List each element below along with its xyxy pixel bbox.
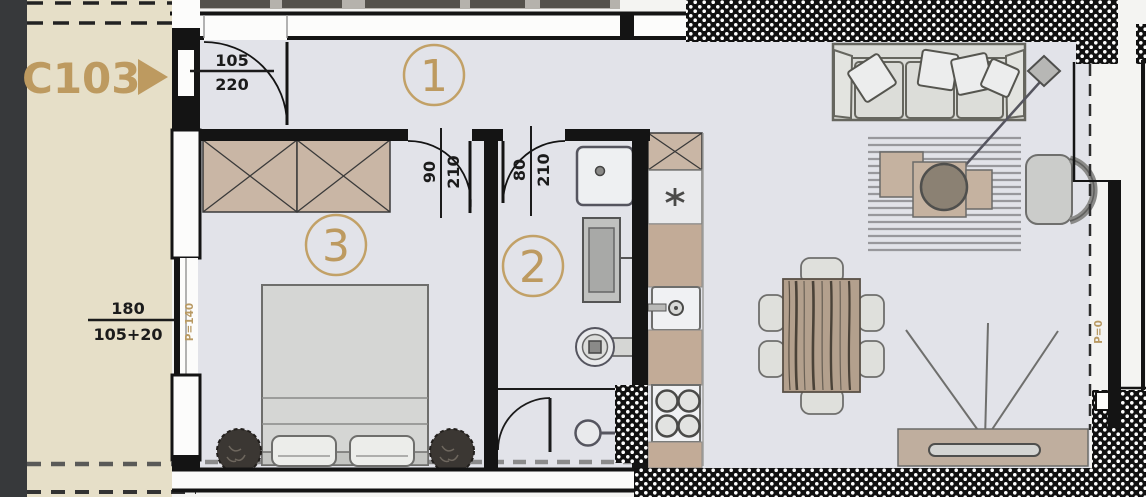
dimension-width-text: 180 — [111, 299, 144, 318]
stove-burner — [679, 416, 700, 437]
sink-drain-dot — [674, 306, 678, 310]
wall-left-cut — [172, 130, 200, 258]
wall-bathroom-west — [484, 129, 498, 468]
wall-hatched-bottom — [634, 468, 1146, 497]
wall-bedroom-north — [196, 129, 408, 141]
installation-shaft — [615, 385, 648, 463]
dining-chair — [858, 295, 884, 331]
pillow — [272, 436, 336, 466]
neighbour-furniture — [365, 0, 460, 8]
neighbour-unit-sliver — [196, 0, 620, 9]
wall-bottom — [172, 468, 634, 492]
neighbour-furniture — [282, 0, 342, 8]
armchair-seat — [1026, 155, 1072, 224]
stove-burner — [657, 416, 678, 437]
dimension-height-text: 105+20 — [93, 325, 162, 344]
window-frame — [174, 258, 180, 375]
round-side-table — [921, 164, 967, 210]
dimension-width-text: 90 — [420, 161, 439, 183]
shower-drain-icon — [596, 167, 605, 176]
kitchen-counter — [648, 224, 702, 287]
shower-tray — [577, 147, 633, 205]
table-wood-grain — [849, 281, 850, 390]
wall-hatched-top — [686, 0, 1118, 42]
dimension-height-text: 220 — [215, 75, 248, 94]
pillow — [350, 436, 414, 466]
stove-burner — [657, 391, 678, 412]
wall-left-cut — [172, 375, 200, 460]
dimension-width-text: 105 — [215, 51, 248, 70]
stove-burner — [679, 391, 700, 412]
tv-screen — [929, 444, 1040, 456]
room-number-text: 2 — [519, 242, 547, 293]
corridor-window: P=140 — [174, 258, 198, 375]
dimension-width-text: 80 — [510, 159, 529, 181]
toilet-tank — [612, 338, 634, 356]
dimension-height-text: 210 — [534, 153, 553, 186]
parapet-label-left: P=140 — [184, 303, 196, 341]
room-number-text: 3 — [322, 221, 350, 272]
dining-chair — [858, 341, 884, 377]
table-wood-grain — [796, 281, 797, 390]
wall-hatched-edge — [1136, 24, 1146, 64]
dimension-height-text: 210 — [444, 155, 463, 188]
floor-plan-drawing: C103 180 105+20 — [0, 0, 1146, 497]
sofa-armrest-left — [834, 50, 852, 118]
neighbour-furniture — [540, 0, 610, 8]
floor-plan-screenshot: C103 180 105+20 — [0, 0, 1146, 497]
table-wood-grain — [813, 281, 814, 390]
wall-bottom-fill — [172, 468, 634, 492]
kitchen-counter — [648, 442, 702, 468]
washbasin — [576, 421, 601, 446]
parapet-label-right: P=0 — [1093, 320, 1105, 344]
table-wood-grain — [831, 281, 832, 390]
dining-chair — [759, 341, 785, 377]
window-glass-bar — [1108, 180, 1121, 428]
kitchen — [648, 133, 703, 468]
neighbour-furniture — [470, 0, 525, 8]
corridor-area: C103 180 105+20 — [22, 0, 196, 497]
wall-junction — [620, 12, 634, 40]
kitchen-counter — [648, 330, 702, 385]
wall-hatched-top-right — [1076, 0, 1118, 64]
corridor-unit-label: C103 — [22, 54, 141, 103]
sofa — [833, 44, 1025, 120]
toilet-flush-icon — [589, 341, 601, 353]
neighbour-furniture — [200, 0, 270, 8]
room-number-text: 1 — [420, 51, 448, 102]
side-table — [966, 170, 992, 209]
wall-left-niche — [178, 50, 194, 96]
washing-machine-drum — [589, 228, 614, 292]
dining-chair — [759, 295, 785, 331]
facade-edge-line — [1141, 60, 1145, 390]
sink-faucet-lever — [648, 304, 666, 311]
wall-top — [196, 12, 690, 40]
